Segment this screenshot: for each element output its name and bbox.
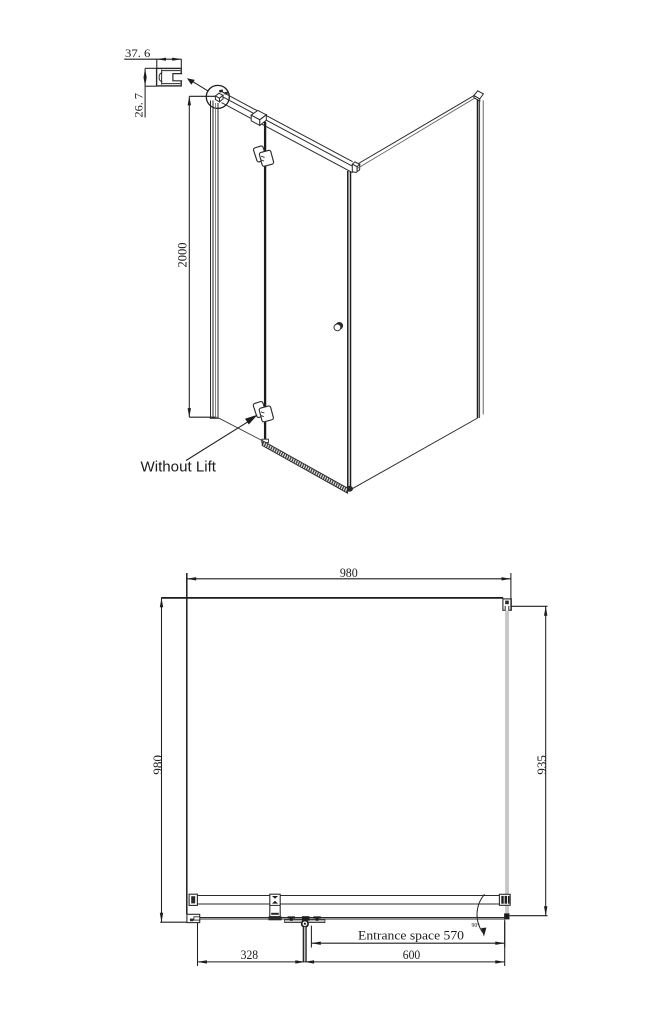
svg-text:26. 7: 26. 7 xyxy=(132,93,146,118)
svg-text:Entrance space 570: Entrance space 570 xyxy=(358,928,464,942)
svg-text:935: 935 xyxy=(534,755,549,775)
svg-text:Without Lift: Without Lift xyxy=(141,459,217,476)
svg-text:37. 6: 37. 6 xyxy=(125,46,150,60)
svg-text:980: 980 xyxy=(340,565,358,580)
svg-text:328: 328 xyxy=(241,947,259,962)
svg-text:2000: 2000 xyxy=(175,243,190,268)
svg-text:980: 980 xyxy=(150,755,165,775)
svg-text:600: 600 xyxy=(403,947,421,962)
